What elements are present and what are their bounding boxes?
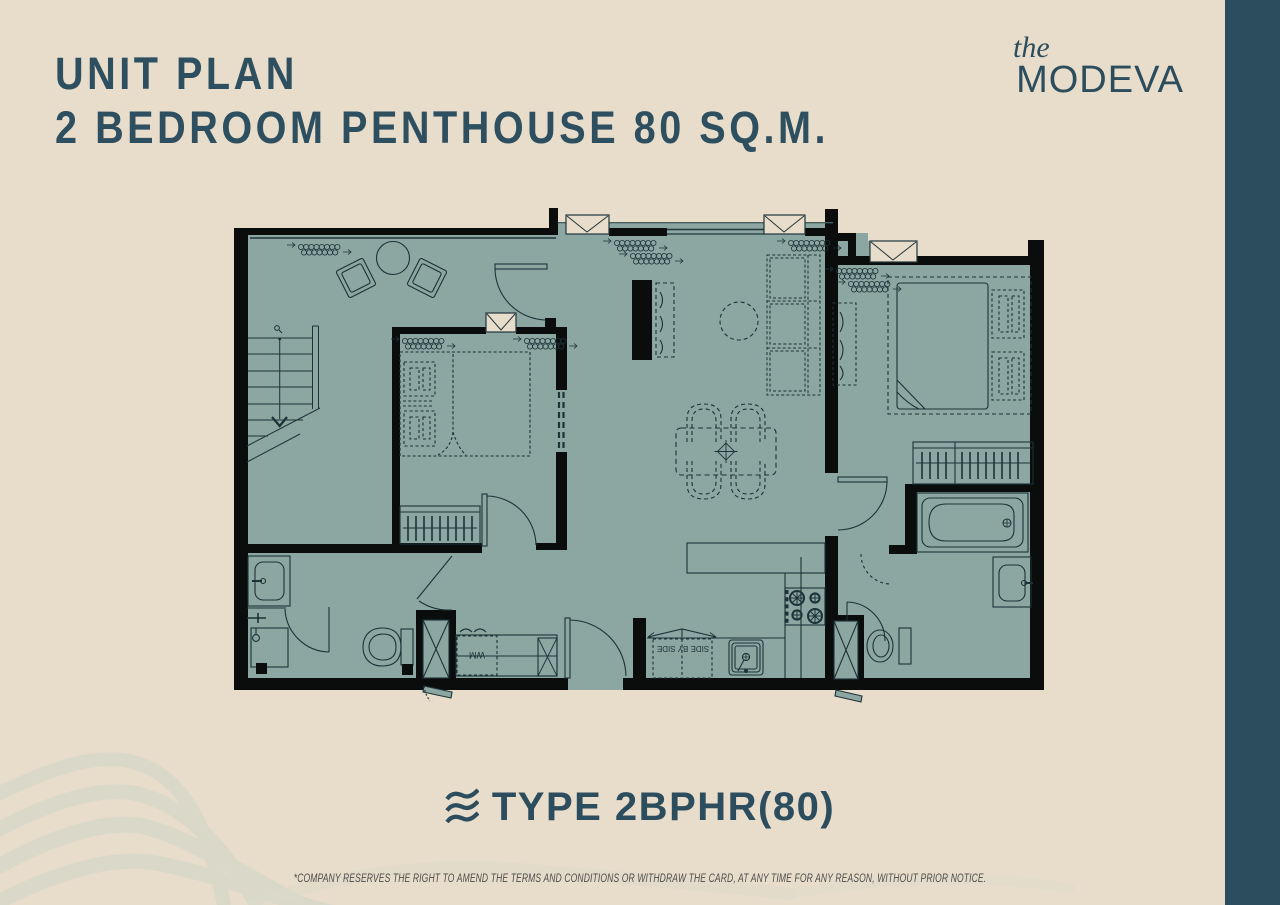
svg-text:SIDE BY SIDE: SIDE BY SIDE <box>657 644 709 653</box>
svg-text:WM: WM <box>469 650 485 660</box>
